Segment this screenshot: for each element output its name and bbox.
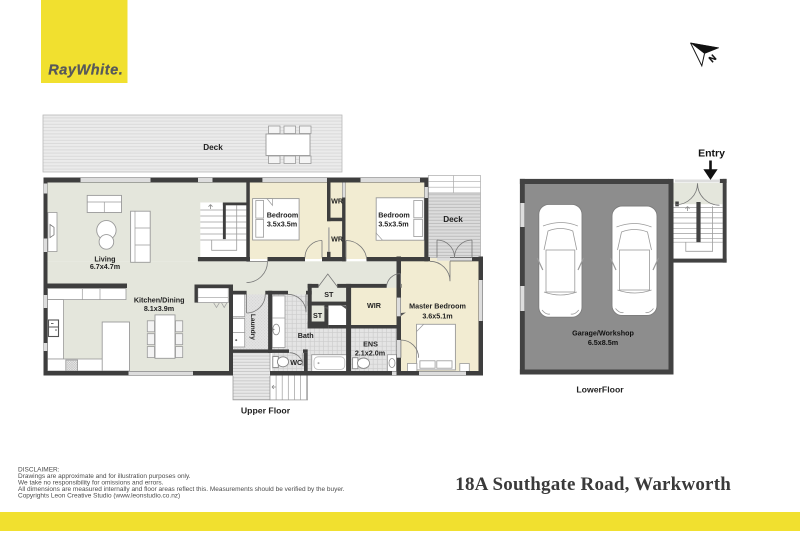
svg-text:Bath: Bath (298, 331, 314, 340)
svg-text:Laundry: Laundry (249, 314, 256, 340)
svg-text:Entry: Entry (698, 148, 725, 160)
svg-text:3.5x3.5m: 3.5x3.5m (267, 219, 297, 228)
svg-text:Garage/Workshop: Garage/Workshop (572, 328, 634, 337)
svg-text:WIR: WIR (367, 301, 382, 310)
svg-text:Deck: Deck (203, 143, 223, 152)
svg-text:WR: WR (331, 196, 344, 205)
svg-text:LowerFloor: LowerFloor (576, 384, 624, 394)
svg-text:Bedroom: Bedroom (267, 211, 299, 220)
svg-text:WC: WC (290, 358, 302, 367)
svg-text:18A Southgate Road, Warkworth: 18A Southgate Road, Warkworth (455, 474, 731, 495)
svg-text:RayWhite.: RayWhite. (48, 63, 123, 79)
svg-text:Upper Floor: Upper Floor (241, 406, 291, 416)
svg-text:Master Bedroom: Master Bedroom (409, 302, 466, 311)
svg-text:6.5x8.5m: 6.5x8.5m (588, 338, 618, 347)
svg-text:8.1x3.9m: 8.1x3.9m (144, 304, 174, 313)
svg-text:WR: WR (331, 235, 344, 244)
svg-text:Copyrights Leon Creative Studi: Copyrights Leon Creative Studio (www.leo… (18, 493, 180, 500)
svg-text:3.6x5.1m: 3.6x5.1m (422, 312, 452, 321)
svg-text:ENS: ENS (363, 340, 378, 349)
svg-text:3.5x3.5m: 3.5x3.5m (378, 219, 408, 228)
svg-text:Bedroom: Bedroom (378, 211, 410, 220)
svg-text:6.7x4.7m: 6.7x4.7m (90, 262, 120, 271)
svg-text:ST: ST (313, 311, 323, 320)
svg-text:ST: ST (324, 290, 334, 299)
svg-text:2.1x2.0m: 2.1x2.0m (355, 348, 385, 357)
svg-text:Deck: Deck (443, 215, 463, 224)
